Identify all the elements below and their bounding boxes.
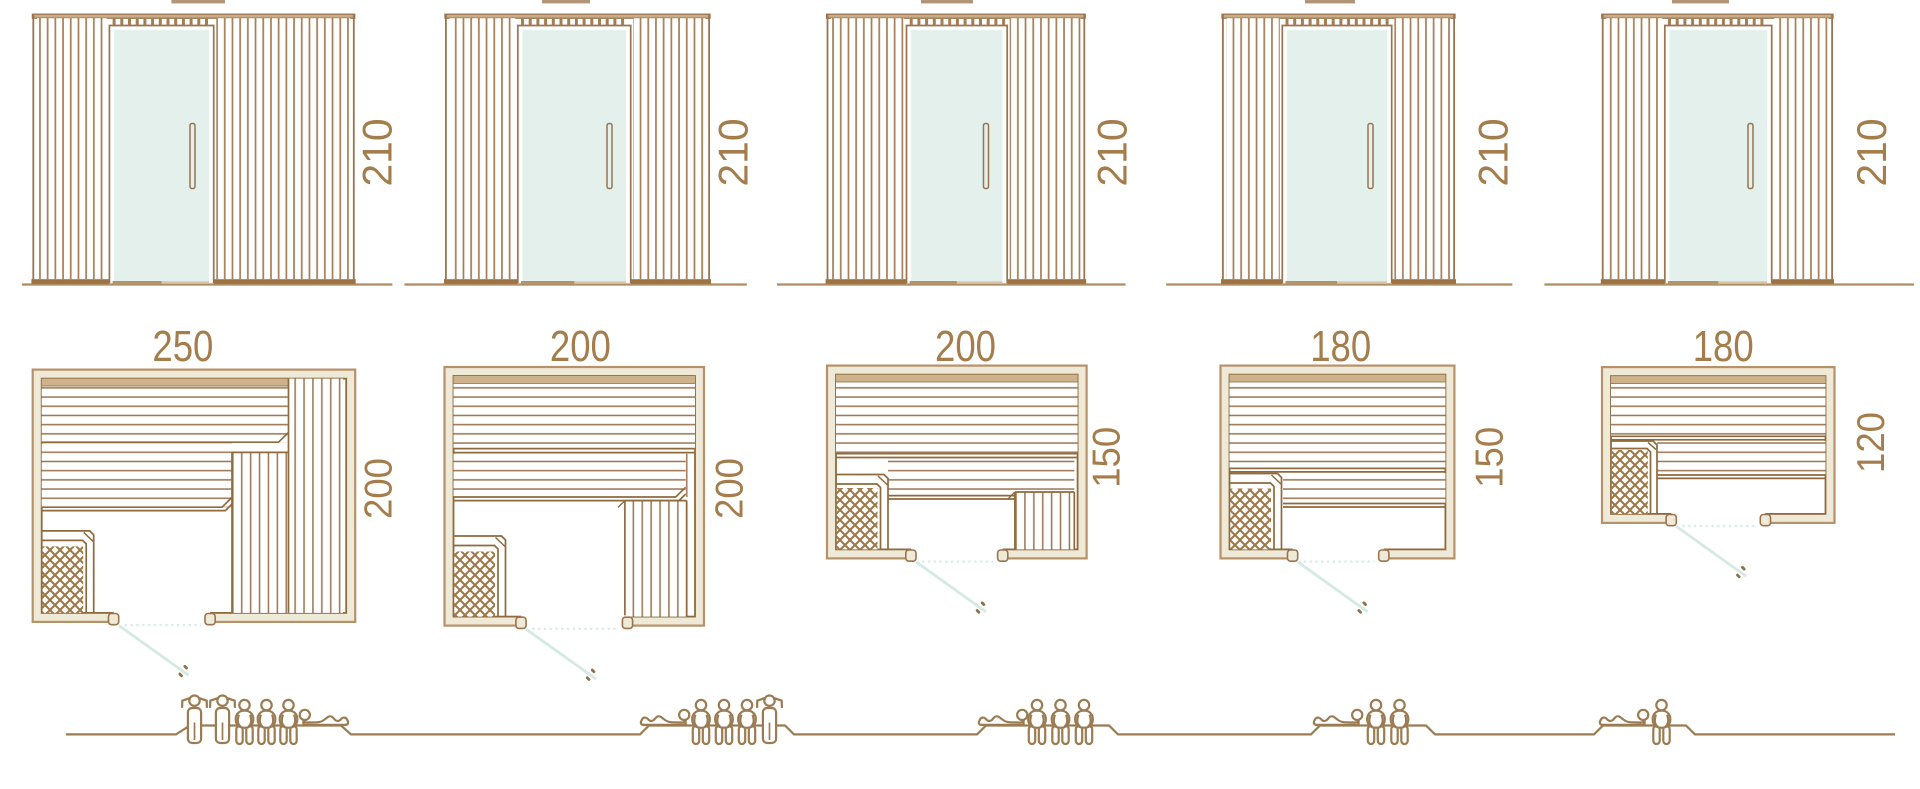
svg-text:150: 150 — [1469, 427, 1512, 488]
svg-text:200: 200 — [550, 322, 611, 371]
svg-text:210: 210 — [354, 119, 401, 187]
svg-text:200: 200 — [935, 322, 996, 371]
svg-text:250: 250 — [152, 322, 213, 371]
svg-text:210: 210 — [710, 119, 757, 187]
svg-text:180: 180 — [1693, 322, 1754, 371]
svg-text:200: 200 — [709, 458, 752, 519]
svg-text:200: 200 — [358, 458, 401, 519]
svg-text:210: 210 — [1848, 119, 1895, 187]
svg-text:120: 120 — [1850, 412, 1893, 473]
svg-text:210: 210 — [1470, 119, 1517, 187]
svg-text:180: 180 — [1310, 322, 1371, 371]
svg-text:150: 150 — [1086, 427, 1129, 488]
svg-text:210: 210 — [1089, 119, 1136, 187]
